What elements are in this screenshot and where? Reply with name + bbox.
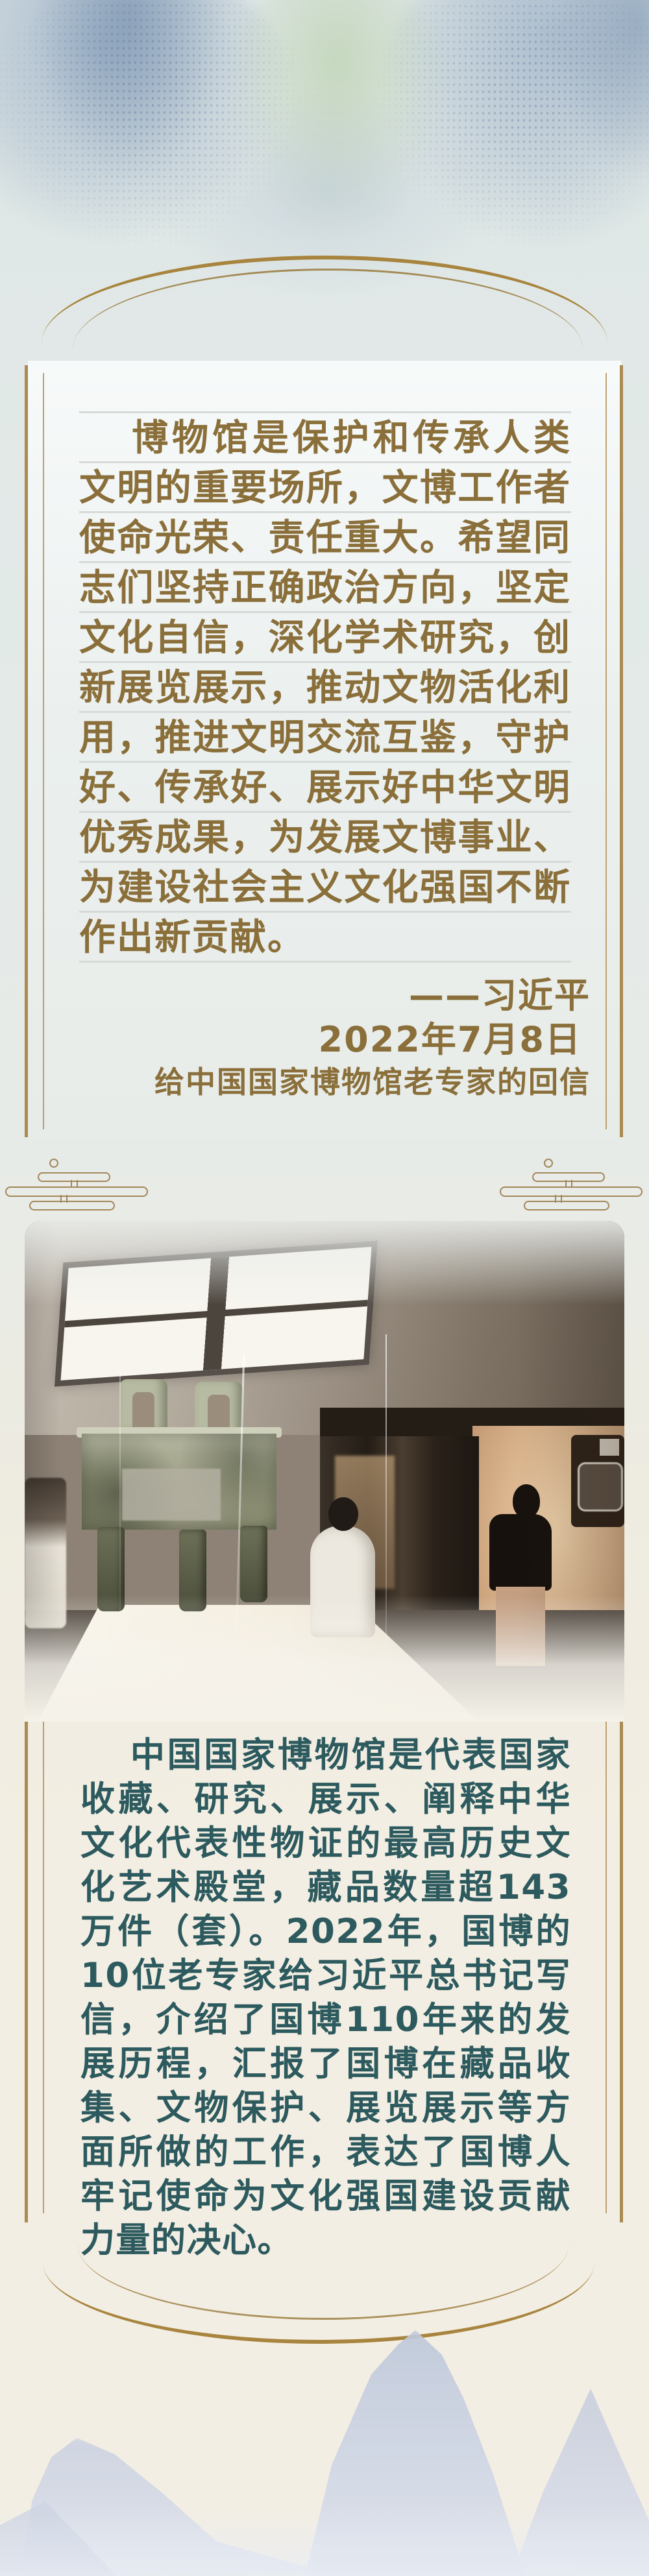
ruyi-ornament-left-icon [5,1159,149,1216]
quote-text: 博物馆是保护和传承人类文明的重要场所，文博工作者使命光荣、责任重大。希望同志们坚… [79,363,571,965]
quote-frame-line-right-inner [606,373,607,1129]
photo-bottom-fade [25,1595,624,1722]
ornament-bar [500,1186,643,1197]
quote-frame-line-left-outer [25,365,28,1137]
ornament-circle [544,1159,553,1168]
quote-source: 给中国国家博物馆老专家的回信 [154,1059,591,1101]
quote-frame-line-right-outer [620,365,623,1137]
article-page: 博物馆是保护和传承人类文明的重要场所，文博工作者使命光荣、责任重大。希望同志们坚… [0,0,649,2576]
ruyi-ornament-right-icon [500,1159,644,1216]
photo-top-fade [25,1221,624,1305]
quote-frame-line-left-inner [43,373,44,1129]
quote-date: 2022年7月8日 [319,1011,582,1062]
ornament-bar [524,1201,609,1210]
museum-photo [25,1221,624,1722]
ornament-bar [5,1186,148,1197]
bottom-haze [0,2504,649,2576]
ornament-bar [29,1201,115,1210]
ornament-circle [49,1159,58,1168]
bottom-arc-inner-icon [78,2170,569,2320]
